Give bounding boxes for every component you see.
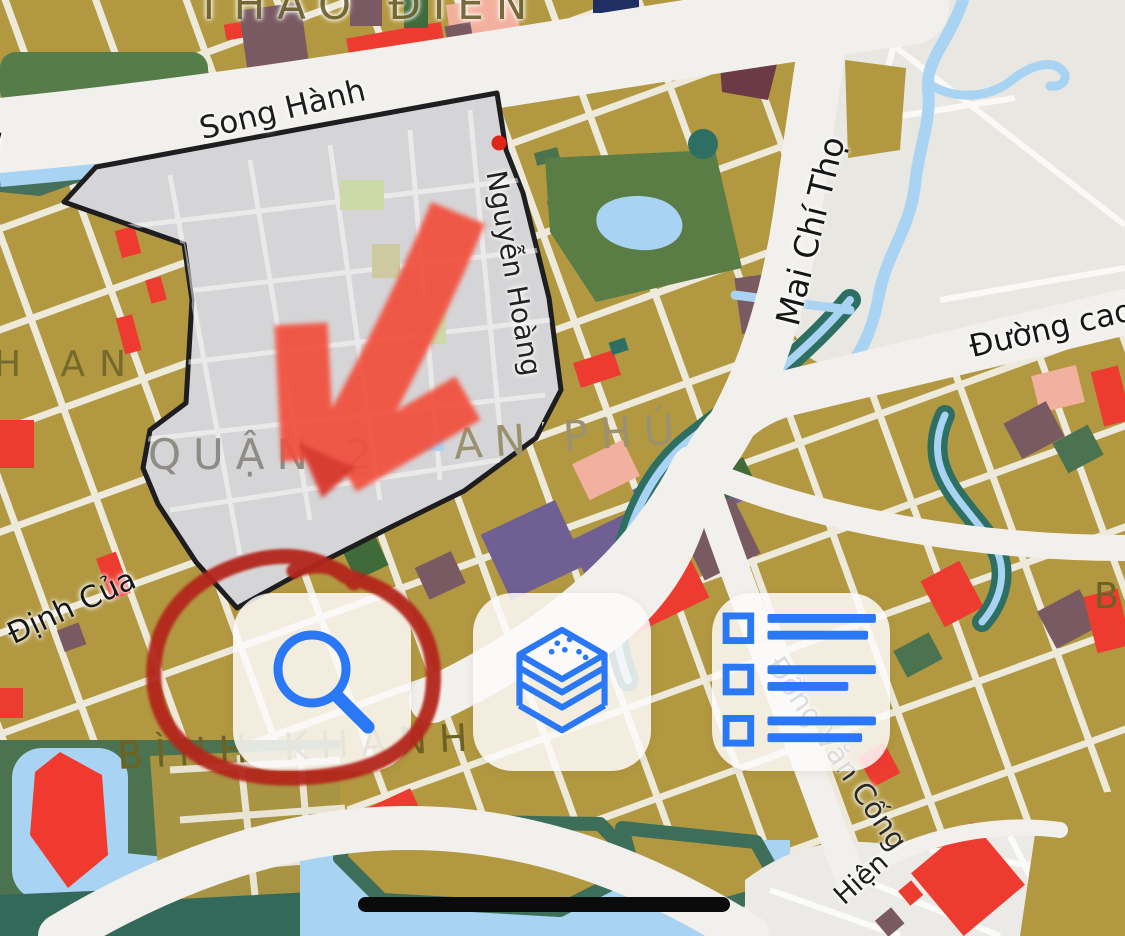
map-app-screen: { "app": { "description": "Vietnamese la… [0,0,1125,936]
region-vertex-dot [492,136,507,151]
magnifier-icon [267,626,377,739]
search-button[interactable] [233,593,411,771]
map-layers-button[interactable] [473,593,651,771]
list-icon [722,612,880,753]
legend-list-button[interactable] [712,593,890,771]
map-canvas[interactable] [0,0,1125,936]
layers-icon [510,622,614,743]
home-indicator-bar[interactable] [358,897,730,912]
